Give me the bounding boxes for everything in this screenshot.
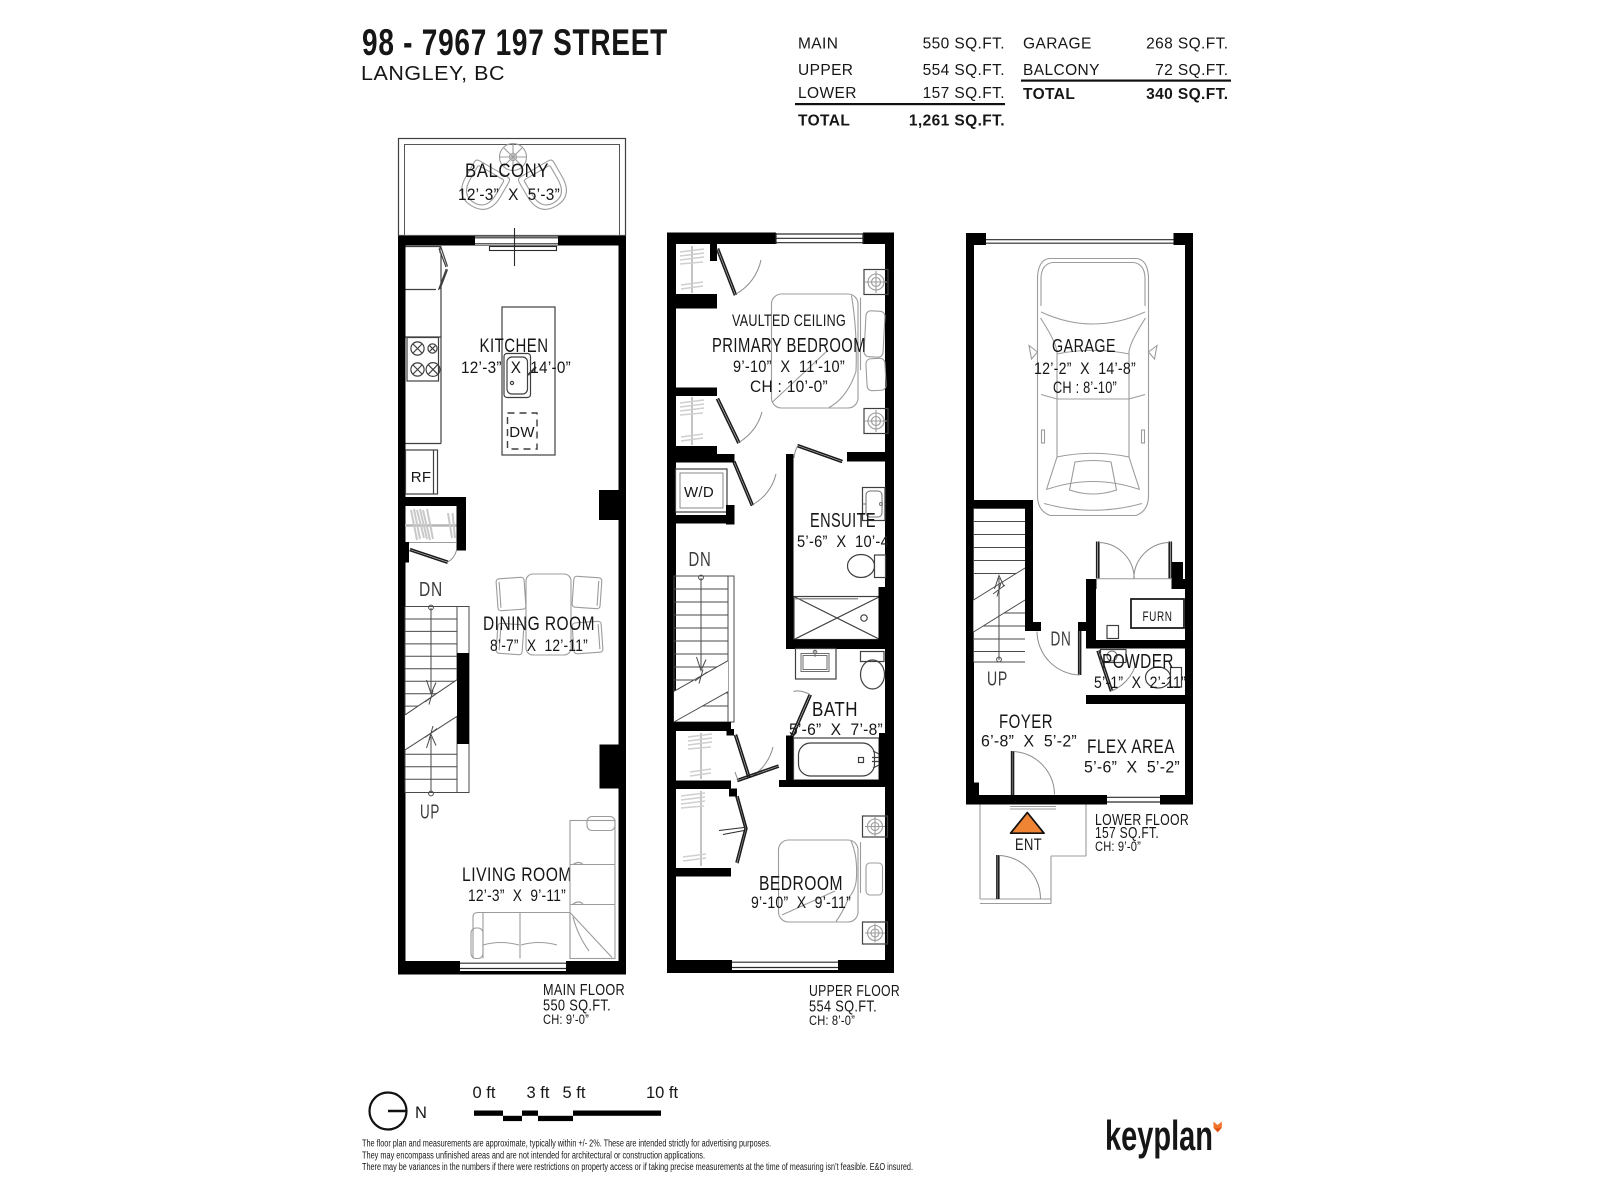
svg-text:RF: RF xyxy=(411,469,432,486)
svg-text:CH : 10’-0”: CH : 10’-0” xyxy=(750,377,828,396)
svg-text:ENT: ENT xyxy=(1015,836,1042,854)
svg-text:MAIN: MAIN xyxy=(798,36,838,53)
svg-text:9’-10” X 9’-11”: 9’-10” X 9’-11” xyxy=(751,893,851,912)
svg-text:12’-3” X 14’-0”: 12’-3” X 14’-0” xyxy=(461,358,571,377)
svg-text:N: N xyxy=(415,1104,427,1122)
svg-text:UP: UP xyxy=(420,802,440,824)
svg-text:CH: 9’-0”: CH: 9’-0” xyxy=(1095,839,1141,854)
svg-text:5’-6” X 7’-8”: 5’-6” X 7’-8” xyxy=(789,720,883,739)
svg-text:ENSUITE: ENSUITE xyxy=(810,510,876,532)
svg-text:10 ft: 10 ft xyxy=(646,1084,679,1102)
svg-text:The floor plan and measurement: The floor plan and measurements are appr… xyxy=(362,1139,771,1150)
svg-text:There may be variances in the: There may be variances in the numbers if… xyxy=(362,1162,913,1173)
svg-text:5’-1” X 2’-11”: 5’-1” X 2’-11” xyxy=(1094,673,1186,692)
svg-text:12’-3” X 9’-11”: 12’-3” X 9’-11” xyxy=(468,886,566,905)
svg-text:UP: UP xyxy=(987,669,1008,691)
svg-text:LOWER: LOWER xyxy=(798,85,857,102)
svg-text:FLEX AREA: FLEX AREA xyxy=(1087,736,1175,758)
svg-text:CH : 8’-10”: CH : 8’-10” xyxy=(1053,378,1117,397)
svg-text:3 ft: 3 ft xyxy=(527,1084,550,1102)
svg-text:340 SQ.FT.: 340 SQ.FT. xyxy=(1146,86,1228,103)
svg-text:5’-6” X 5’-2”: 5’-6” X 5’-2” xyxy=(1084,758,1180,777)
svg-text:FURN: FURN xyxy=(1143,609,1173,624)
svg-text:DINING ROOM: DINING ROOM xyxy=(483,614,595,635)
svg-text:keyplan: keyplan xyxy=(1105,1112,1213,1159)
svg-text:They may encompass unfinished: They may encompass unfinished areas and … xyxy=(362,1150,705,1161)
svg-text:6’-8” X 5’-2”: 6’-8” X 5’-2” xyxy=(981,732,1077,751)
svg-text:UPPER FLOOR: UPPER FLOOR xyxy=(809,983,900,1000)
svg-text:554 SQ.FT.: 554 SQ.FT. xyxy=(923,62,1005,79)
svg-text:LIVING ROOM: LIVING ROOM xyxy=(462,865,572,886)
svg-text:DN: DN xyxy=(1051,629,1072,651)
svg-text:BALCONY: BALCONY xyxy=(1023,62,1100,79)
svg-text:BEDROOM: BEDROOM xyxy=(759,873,843,895)
svg-text:W/D: W/D xyxy=(684,484,714,501)
svg-text:UPPER: UPPER xyxy=(798,62,853,79)
svg-text:DN: DN xyxy=(689,549,712,571)
svg-text:12’-3” X 5’-3”: 12’-3” X 5’-3” xyxy=(458,185,560,204)
svg-text:72 SQ.FT.: 72 SQ.FT. xyxy=(1155,62,1228,79)
svg-text:GARAGE: GARAGE xyxy=(1023,36,1092,53)
svg-text:DN: DN xyxy=(419,579,443,601)
svg-text:GARAGE: GARAGE xyxy=(1052,336,1116,356)
svg-text:BALCONY: BALCONY xyxy=(465,161,549,182)
svg-text:12’-2” X 14’-8”: 12’-2” X 14’-8” xyxy=(1034,359,1136,378)
svg-text:TOTAL: TOTAL xyxy=(1023,86,1075,103)
svg-text:PRIMARY BEDROOM: PRIMARY BEDROOM xyxy=(712,335,866,357)
svg-text:MAIN FLOOR: MAIN FLOOR xyxy=(543,982,625,999)
svg-text:CH: 9’-0”: CH: 9’-0” xyxy=(543,1012,589,1027)
svg-text:157 SQ.FT.: 157 SQ.FT. xyxy=(923,85,1005,102)
svg-text:1,261 SQ.FT.: 1,261 SQ.FT. xyxy=(909,113,1005,130)
svg-text:VAULTED CEILING: VAULTED CEILING xyxy=(732,311,846,330)
svg-text:TOTAL: TOTAL xyxy=(798,113,850,130)
svg-text:POWDER: POWDER xyxy=(1102,651,1174,673)
svg-text:CH: 8’-0”: CH: 8’-0” xyxy=(809,1013,855,1028)
svg-text:9’-10” X 11’-10”: 9’-10” X 11’-10” xyxy=(733,357,845,376)
svg-text:5 ft: 5 ft xyxy=(563,1084,586,1102)
svg-text:DW: DW xyxy=(509,424,535,441)
svg-text:0 ft: 0 ft xyxy=(473,1084,496,1102)
svg-text:550 SQ.FT.: 550 SQ.FT. xyxy=(923,36,1005,53)
svg-text:5’-6” X 10’-4: 5’-6” X 10’-4 xyxy=(797,532,889,551)
svg-text:LANGLEY, BC: LANGLEY, BC xyxy=(361,63,505,85)
svg-text:KITCHEN: KITCHEN xyxy=(480,336,549,357)
svg-text:FOYER: FOYER xyxy=(999,711,1053,733)
svg-text:98 - 7967 197 STREET: 98 - 7967 197 STREET xyxy=(362,22,668,63)
svg-text:8’-7” X 12’-11”: 8’-7” X 12’-11” xyxy=(490,636,588,655)
svg-text:268 SQ.FT.: 268 SQ.FT. xyxy=(1146,36,1228,53)
svg-text:BATH: BATH xyxy=(812,699,858,721)
